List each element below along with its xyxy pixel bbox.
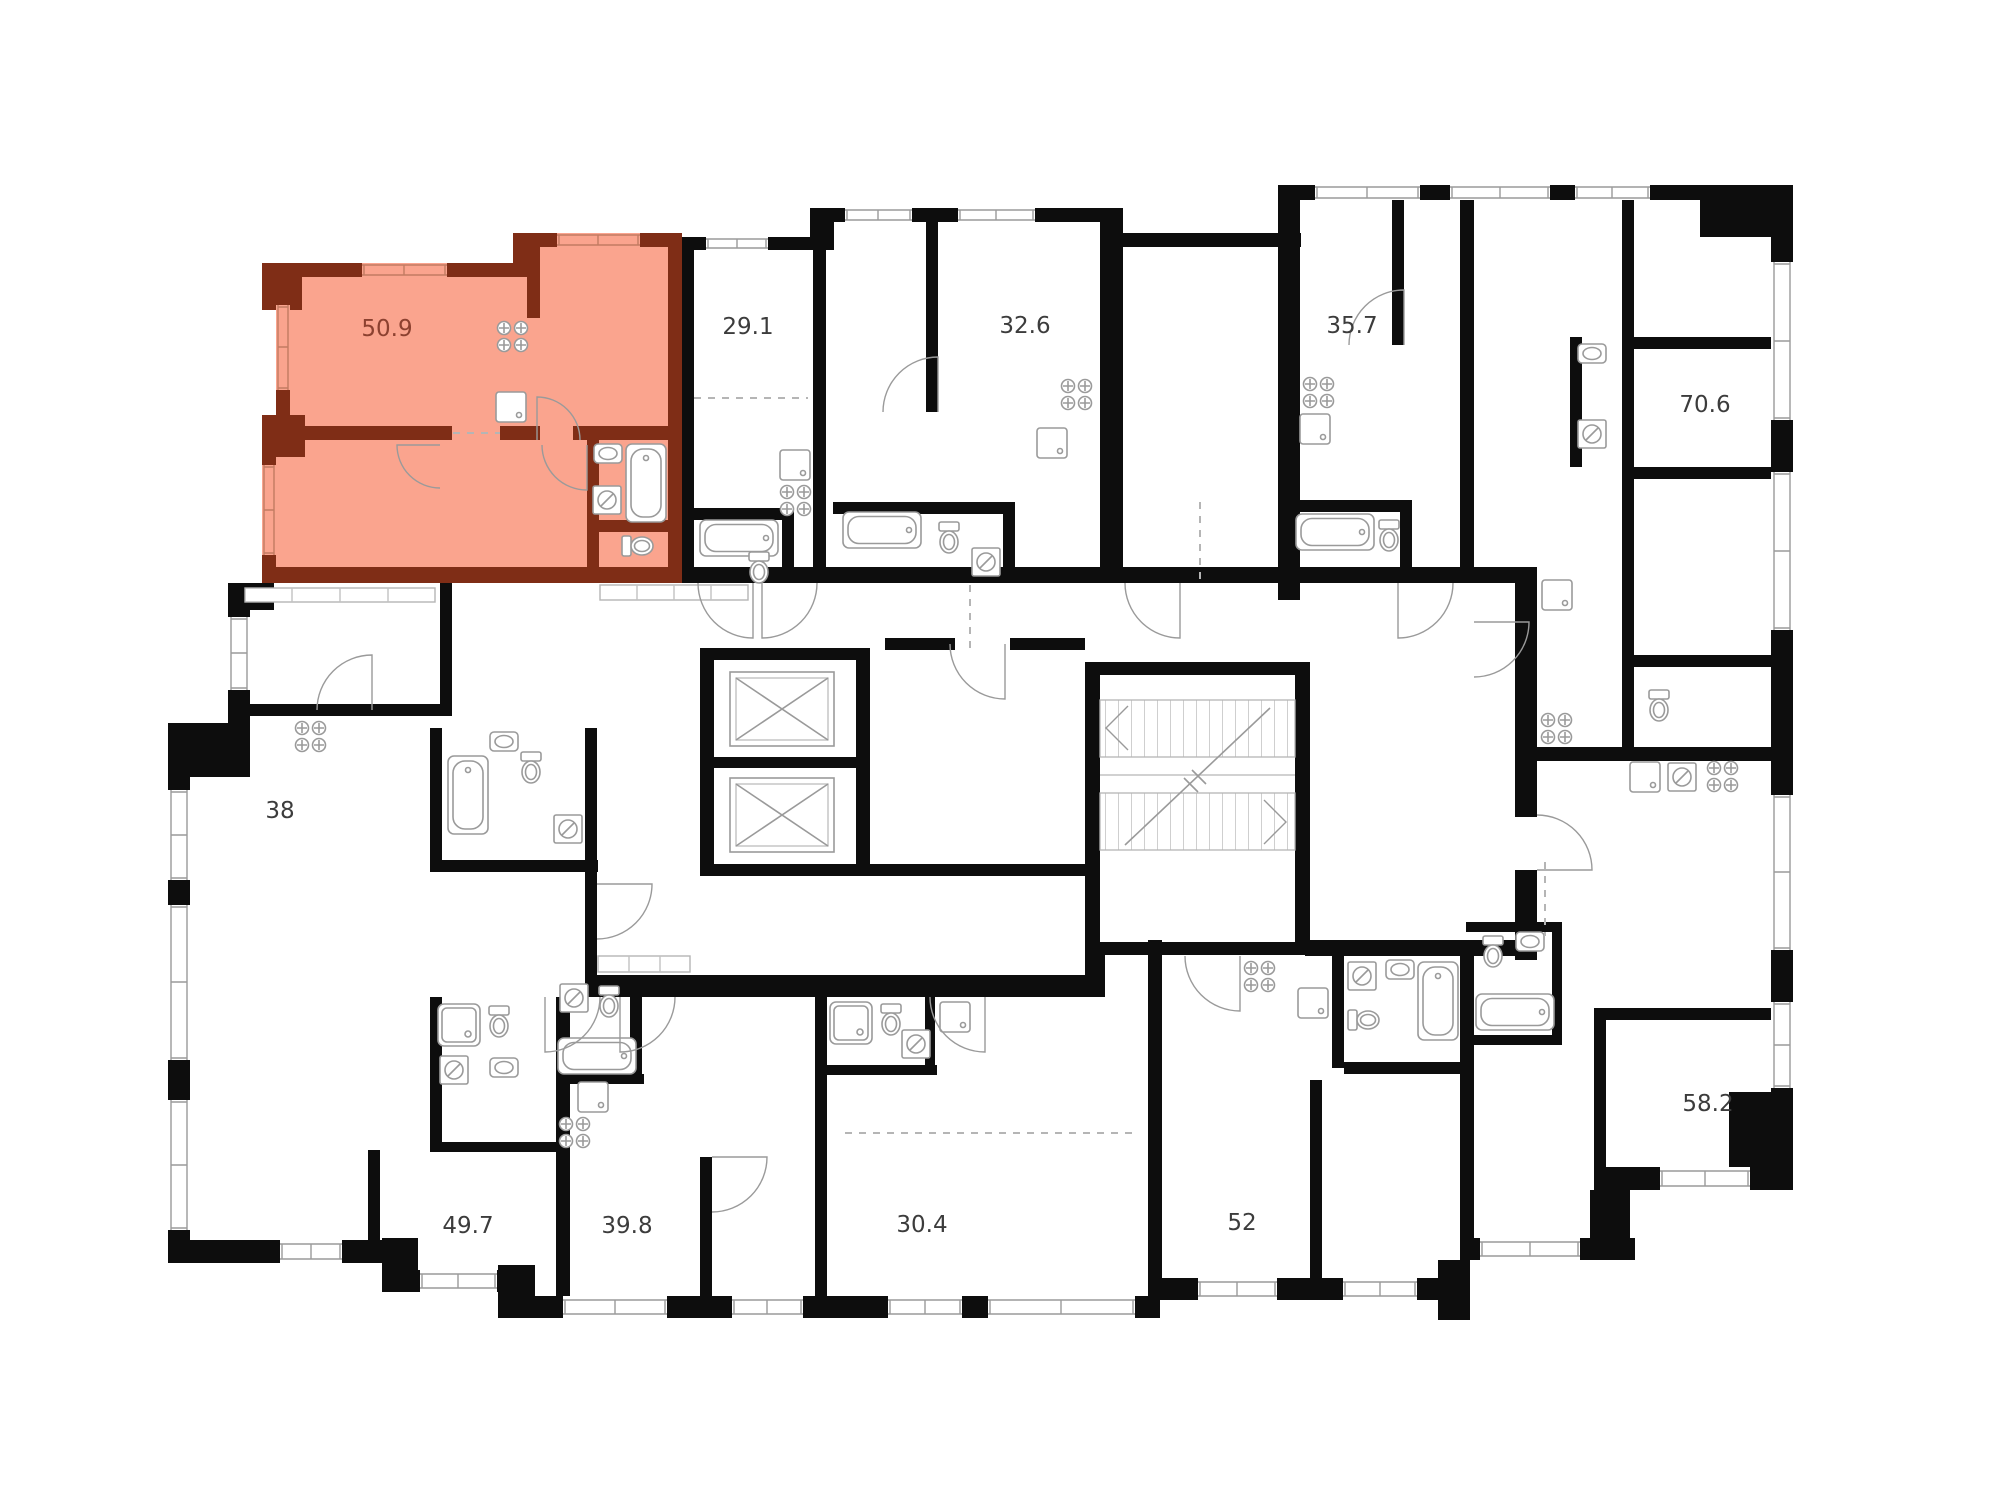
bathtub-icon bbox=[558, 1038, 636, 1074]
unit-30-4-label[interactable]: 30.4 bbox=[896, 1212, 947, 1238]
washing-machine-icon bbox=[593, 486, 621, 514]
svg-text:39.8: 39.8 bbox=[601, 1213, 652, 1239]
unit-52-label[interactable]: 52 bbox=[1227, 1210, 1256, 1236]
svg-text:52: 52 bbox=[1227, 1210, 1256, 1236]
washing-machine-icon bbox=[1668, 763, 1696, 791]
stairs-icon bbox=[1100, 700, 1295, 850]
svg-text:29.1: 29.1 bbox=[722, 314, 773, 340]
washing-machine-icon bbox=[902, 1030, 930, 1058]
stove-icon bbox=[296, 722, 326, 752]
svg-text:35.7: 35.7 bbox=[1326, 313, 1377, 339]
unit-32-6-label[interactable]: 32.6 bbox=[999, 313, 1050, 339]
washing-machine-icon bbox=[1348, 962, 1376, 990]
kitchen-sink-icon bbox=[1300, 414, 1330, 444]
bathroom-sink-icon bbox=[490, 1058, 518, 1077]
washing-machine-icon bbox=[972, 548, 1000, 576]
wardrobes bbox=[245, 585, 748, 972]
bathtub-icon bbox=[1476, 994, 1554, 1030]
floor-plan: 50.9 29.1 32.6 35.7 70.6 38 49.7 39.8 30… bbox=[0, 0, 2000, 1500]
kitchen-sink-icon bbox=[1630, 762, 1660, 792]
toilet-icon bbox=[1379, 520, 1399, 551]
bathroom-sink-icon bbox=[594, 444, 622, 463]
elevator-icon bbox=[730, 672, 834, 746]
kitchen-sink-icon bbox=[940, 1002, 970, 1032]
svg-text:49.7: 49.7 bbox=[442, 1213, 493, 1239]
svg-text:30.4: 30.4 bbox=[896, 1212, 947, 1238]
stove-icon bbox=[1062, 380, 1092, 410]
unit-38-label[interactable]: 38 bbox=[265, 798, 294, 824]
elevator-icon bbox=[730, 778, 834, 852]
washing-machine-icon bbox=[440, 1056, 468, 1084]
kitchen-sink-icon bbox=[496, 392, 526, 422]
unit-58-2-label[interactable]: 58.2 bbox=[1682, 1091, 1733, 1117]
toilet-icon bbox=[1649, 690, 1669, 721]
bathtub-icon bbox=[1296, 514, 1374, 550]
toilet-icon bbox=[749, 552, 769, 583]
selected-apartment[interactable] bbox=[262, 233, 682, 583]
unit-70-6-label[interactable]: 70.6 bbox=[1679, 392, 1730, 418]
svg-text:58.2: 58.2 bbox=[1682, 1091, 1733, 1117]
unit-49-7-label[interactable]: 49.7 bbox=[442, 1213, 493, 1239]
bathroom-sink-icon bbox=[1578, 344, 1606, 363]
toilet-icon bbox=[521, 752, 541, 783]
bathroom-sink-icon bbox=[1516, 932, 1544, 951]
stove-icon bbox=[1542, 714, 1572, 744]
bathtub-icon bbox=[1418, 962, 1458, 1040]
bathroom-sink-icon bbox=[490, 732, 518, 751]
unit-50-9-label[interactable]: 50.9 bbox=[361, 316, 412, 342]
toilet-icon bbox=[1483, 936, 1503, 967]
shower-icon bbox=[438, 1004, 480, 1046]
kitchen-sink-icon bbox=[1037, 428, 1067, 458]
svg-text:50.9: 50.9 bbox=[361, 316, 412, 342]
washing-machine-icon bbox=[560, 984, 588, 1012]
toilet-icon bbox=[599, 986, 619, 1017]
toilet-icon bbox=[622, 536, 653, 556]
kitchen-sink-icon bbox=[1298, 988, 1328, 1018]
kitchen-sink-icon bbox=[780, 450, 810, 480]
bathtub-icon bbox=[626, 444, 666, 522]
bathroom-sink-icon bbox=[1386, 960, 1414, 979]
svg-text:32.6: 32.6 bbox=[999, 313, 1050, 339]
elevator-core bbox=[700, 648, 1100, 876]
bathtub-icon bbox=[448, 756, 488, 834]
toilet-icon bbox=[881, 1004, 901, 1035]
unit-29-1-label[interactable]: 29.1 bbox=[722, 314, 773, 340]
stove-icon bbox=[1708, 762, 1738, 792]
washing-machine-icon bbox=[554, 815, 582, 843]
stove-icon bbox=[781, 486, 811, 516]
unit-39-8-label[interactable]: 39.8 bbox=[601, 1213, 652, 1239]
stove-icon bbox=[1245, 962, 1275, 992]
toilet-icon bbox=[939, 522, 959, 553]
washing-machine-icon bbox=[1578, 420, 1606, 448]
toilet-icon bbox=[489, 1006, 509, 1037]
bathtub-icon bbox=[700, 520, 778, 556]
bathtub-icon bbox=[843, 512, 921, 548]
kitchen-sink-icon bbox=[578, 1082, 608, 1112]
toilet-icon bbox=[1348, 1010, 1379, 1030]
svg-text:38: 38 bbox=[265, 798, 294, 824]
shower-icon bbox=[830, 1002, 872, 1044]
svg-text:70.6: 70.6 bbox=[1679, 392, 1730, 418]
unit-35-7-label[interactable]: 35.7 bbox=[1326, 313, 1377, 339]
kitchen-sink-icon bbox=[1542, 580, 1572, 610]
stairwell bbox=[1085, 662, 1310, 955]
stove-icon bbox=[1304, 378, 1334, 408]
